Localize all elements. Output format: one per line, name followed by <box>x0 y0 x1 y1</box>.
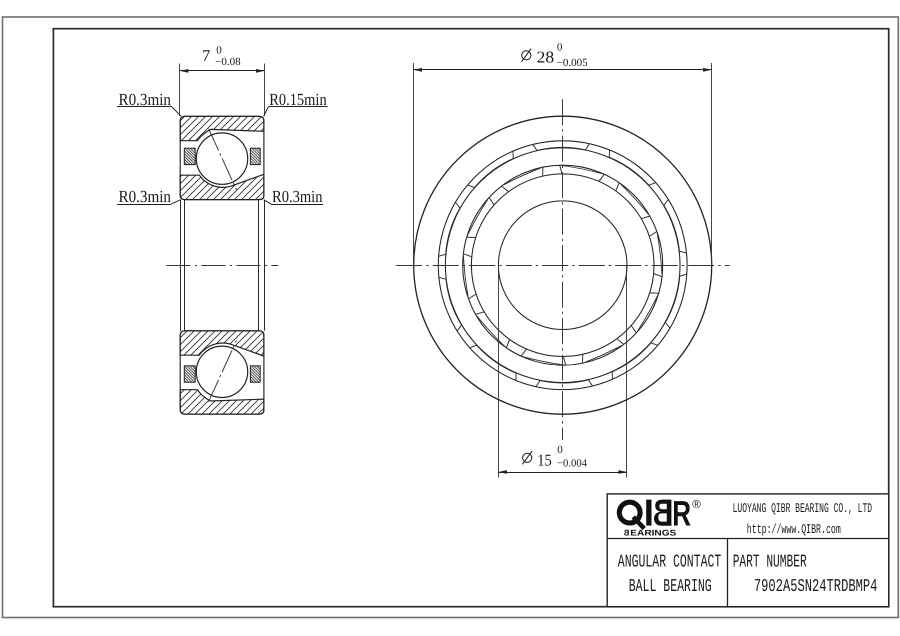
svg-text:R0.3min: R0.3min <box>272 187 323 206</box>
svg-text:7: 7 <box>202 46 210 65</box>
svg-text:R0.3min: R0.3min <box>119 187 172 206</box>
svg-text:7902A5SN24TRDBMP4: 7902A5SN24TRDBMP4 <box>754 577 878 597</box>
svg-text:R0.15min: R0.15min <box>269 90 327 109</box>
svg-text:®: ® <box>692 499 701 511</box>
svg-text:LUOYANG QIBR BEARING CO., LTD: LUOYANG QIBR BEARING CO., LTD <box>733 501 873 516</box>
svg-text:PART NUMBER: PART NUMBER <box>733 553 807 573</box>
svg-text:−0.005: −0.005 <box>557 57 588 69</box>
svg-text:−0.08: −0.08 <box>215 56 241 68</box>
svg-text:R0.3min: R0.3min <box>119 90 172 109</box>
svg-text:0: 0 <box>557 444 563 456</box>
svg-text:−0.004: −0.004 <box>557 458 587 470</box>
svg-text:15: 15 <box>537 451 552 470</box>
svg-text:ANGULAR CONTACT: ANGULAR CONTACT <box>618 553 722 573</box>
svg-text:28: 28 <box>537 48 555 67</box>
svg-text:http://www.QIBR.com: http://www.QIBR.com <box>747 522 841 537</box>
svg-text:BALL BEARING: BALL BEARING <box>629 577 712 597</box>
svg-text:0: 0 <box>216 44 222 56</box>
svg-text:0: 0 <box>557 41 563 53</box>
svg-text:EARINGS: EARINGS <box>630 529 677 538</box>
